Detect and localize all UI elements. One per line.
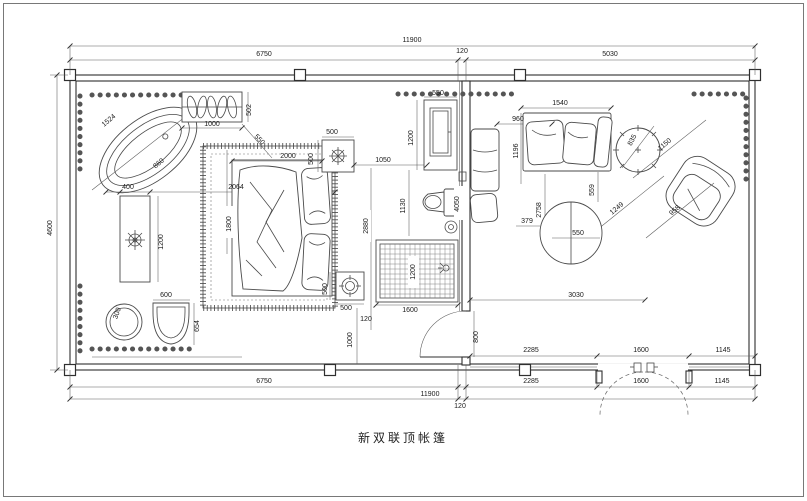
floor-plan-drawing: 11900 6750 120 5030 4600 6750 2285 1600 … bbox=[0, 0, 807, 501]
dim-top-mid: 120 bbox=[456, 48, 468, 55]
dim-table-gap: 559 bbox=[589, 184, 596, 196]
bed bbox=[232, 160, 332, 296]
column bbox=[295, 70, 306, 81]
dim-stool-depth: 500 bbox=[322, 283, 329, 295]
pouf bbox=[106, 304, 142, 340]
dim-armchair-width: 1150 bbox=[657, 137, 673, 152]
dim-shower-depth: 1200 bbox=[410, 264, 417, 280]
dim-bottom-mid: 120 bbox=[454, 403, 466, 410]
dim-nightstand-depth: 500 bbox=[308, 153, 315, 165]
dim-table-dia: 550 bbox=[572, 230, 584, 237]
dim-sofa-gap: 379 bbox=[521, 218, 533, 225]
sofa bbox=[523, 113, 613, 171]
dim-rack-width: 1000 bbox=[204, 121, 220, 128]
dim-console-length: 1200 bbox=[158, 234, 165, 250]
dim-win-inner-3: 1145 bbox=[715, 347, 730, 354]
dim-living-depth: 2758 bbox=[536, 202, 543, 218]
column bbox=[520, 365, 531, 376]
dim-foot-gap: 120 bbox=[360, 316, 372, 323]
door-opening bbox=[598, 364, 688, 372]
dim-seat-depth: 654 bbox=[194, 320, 201, 332]
dim-rack-depth: 502 bbox=[246, 104, 253, 116]
dim-win-outer-3: 1145 bbox=[714, 378, 729, 385]
foot-stool bbox=[336, 272, 364, 300]
column bbox=[325, 365, 336, 376]
dim-bottom-left: 6750 bbox=[256, 378, 272, 385]
extension-lines bbox=[50, 46, 755, 399]
dim-left-height: 4600 bbox=[47, 220, 54, 236]
door-swing-arc bbox=[420, 311, 466, 357]
dim-bed-to-vanity: 1050 bbox=[375, 157, 391, 164]
dim-seat-width: 600 bbox=[160, 292, 172, 299]
console-table bbox=[120, 196, 150, 282]
dim-win-inner-1: 2285 bbox=[523, 347, 539, 354]
column bbox=[515, 70, 526, 81]
side-table bbox=[613, 125, 663, 175]
dim-stool-width: 500 bbox=[340, 305, 352, 312]
lounge-seat bbox=[153, 303, 189, 344]
floor-plan-sheet: 11900 6750 120 5030 4600 6750 2285 1600 … bbox=[0, 0, 807, 501]
dimension-lines bbox=[55, 44, 758, 402]
drawing-title: 新双联顶帐篷 bbox=[358, 430, 448, 445]
dim-bed-width: 2000 bbox=[280, 153, 296, 160]
dim-top-total: 11900 bbox=[403, 37, 422, 44]
dim-sofa-width: 1540 bbox=[552, 100, 568, 107]
dim-mirror-height: 1200 bbox=[408, 130, 415, 146]
dim-top-right: 5030 bbox=[602, 51, 618, 58]
dim-toilet-clear: 1130 bbox=[400, 198, 407, 213]
vanity bbox=[424, 100, 457, 170]
pillow bbox=[302, 233, 331, 290]
dim-ticks bbox=[55, 44, 758, 402]
dim-win-outer-1: 2285 bbox=[523, 378, 539, 385]
dim-win-inner-2: 1600 bbox=[633, 347, 649, 354]
pillow bbox=[301, 167, 331, 225]
dim-nightstand-width: 500 bbox=[326, 129, 338, 136]
dim-console-to-bed: 2064 bbox=[228, 184, 244, 191]
dim-bed-length: 2880 bbox=[363, 218, 370, 234]
dim-living-width: 3030 bbox=[568, 292, 584, 299]
partition-stub bbox=[462, 357, 470, 365]
dim-door-width: 800 bbox=[473, 331, 480, 343]
dim-top-left: 6750 bbox=[256, 51, 272, 58]
dim-win-outer-2: 1600 bbox=[633, 378, 649, 385]
dim-carpet-length: 1800 bbox=[226, 216, 233, 232]
dim-bottom-total: 11900 bbox=[421, 391, 440, 398]
dim-foot-clear: 1000 bbox=[347, 332, 354, 348]
floor-drain-icon bbox=[445, 221, 457, 233]
dim-vanity-width: 550 bbox=[432, 90, 444, 97]
bathroom-door bbox=[420, 311, 466, 357]
dim-chaise-depth: 1196 bbox=[513, 143, 520, 158]
clothes-rack bbox=[182, 92, 242, 122]
dim-shower-width: 1600 bbox=[402, 307, 418, 314]
armchair bbox=[660, 150, 741, 232]
dim-console-width: 400 bbox=[122, 184, 134, 191]
dim-chaise-width: 960 bbox=[512, 116, 524, 123]
door-arc-right bbox=[645, 372, 688, 415]
plant-icon bbox=[125, 230, 145, 250]
round-table bbox=[540, 202, 602, 264]
dim-partition-length: 4050 bbox=[454, 196, 461, 212]
chaise-sofa bbox=[470, 129, 499, 223]
dim-rack-offset: 550 bbox=[253, 133, 266, 146]
dim-tub-length: 1524 bbox=[101, 113, 118, 128]
nightstand bbox=[322, 140, 354, 172]
